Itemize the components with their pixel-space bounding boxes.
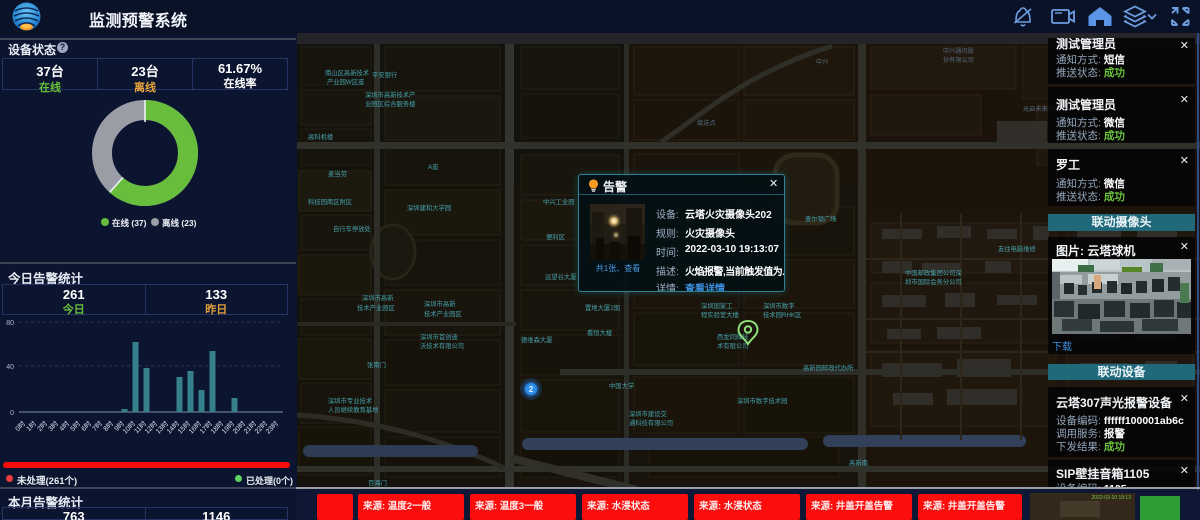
svg-text:深圳市数字技术园: 深圳市数字技术园 xyxy=(737,396,787,405)
svg-text:高科机楼: 高科机楼 xyxy=(308,132,334,141)
svg-text:中国大学: 中国大学 xyxy=(609,381,634,390)
svg-text:张南门: 张南门 xyxy=(367,360,386,369)
svg-text:深圳市首创迪: 深圳市首创迪 xyxy=(420,332,458,341)
svg-text:3时: 3时 xyxy=(46,419,60,433)
svg-text:1时: 1时 xyxy=(24,419,38,433)
svg-text:南山区高新技术: 南山区高新技术 xyxy=(325,68,370,77)
svg-text:查尔顿广场: 查尔顿广场 xyxy=(805,214,836,223)
svg-text:高新园邮政代办所: 高新园邮政代办所 xyxy=(803,363,854,372)
svg-text:高新南: 高新南 xyxy=(849,458,868,467)
svg-text:深圳市高新: 深圳市高新 xyxy=(424,299,456,308)
svg-text:深圳市专业技术: 深圳市专业技术 xyxy=(328,396,373,405)
svg-text:0: 0 xyxy=(10,410,14,417)
svg-text:5时: 5时 xyxy=(68,419,82,433)
svg-text:中兴通讯股: 中兴通讯股 xyxy=(943,47,974,55)
svg-text:深圳市高新: 深圳市高新 xyxy=(362,293,394,302)
svg-text:技术产业园区: 技术产业园区 xyxy=(424,309,462,318)
svg-text:沃技术有限公司: 沃技术有限公司 xyxy=(420,341,464,350)
svg-text:圳市国际会务分公司: 圳市国际会务分公司 xyxy=(905,277,962,286)
svg-text:术有限公司: 术有限公司 xyxy=(717,341,748,350)
svg-text:80: 80 xyxy=(6,320,14,327)
svg-text:麦当劳: 麦当劳 xyxy=(328,169,347,178)
svg-text:通科技有限公司: 通科技有限公司 xyxy=(629,418,673,427)
svg-text:远望谷大厦: 远望谷大厦 xyxy=(545,272,577,281)
svg-text:深圳建和大学园: 深圳建和大学园 xyxy=(407,203,451,212)
svg-text:置地大厦2期: 置地大厦2期 xyxy=(585,303,620,312)
svg-text:业园区综合服务楼: 业园区综合服务楼 xyxy=(365,99,416,108)
svg-text:中兴: 中兴 xyxy=(816,58,828,66)
svg-text:技术园RHK区: 技术园RHK区 xyxy=(763,310,801,319)
svg-text:8时: 8时 xyxy=(101,419,115,433)
svg-text:2: 2 xyxy=(529,385,534,394)
svg-text:德维森大厦: 德维森大厦 xyxy=(521,335,553,344)
svg-text:看恒大楼: 看恒大楼 xyxy=(587,328,613,337)
svg-text:深圳国家工: 深圳国家工 xyxy=(701,301,732,310)
svg-text:7时: 7时 xyxy=(90,419,104,433)
svg-text:深圳市数字: 深圳市数字 xyxy=(763,301,794,310)
svg-text:自行车停放处: 自行车停放处 xyxy=(333,224,371,233)
svg-text:平安银行: 平安银行 xyxy=(372,70,398,79)
svg-text:中国邮政集团公司深: 中国邮政集团公司深 xyxy=(905,268,962,277)
svg-text:人员继续教育基地: 人员继续教育基地 xyxy=(328,405,379,414)
svg-text:6时: 6时 xyxy=(79,419,93,433)
svg-text:0时: 0时 xyxy=(13,419,27,433)
svg-text:中兴工业园: 中兴工业园 xyxy=(543,197,574,206)
svg-text:技术产业园区: 技术产业园区 xyxy=(357,303,395,312)
svg-text:科技园南区附区: 科技园南区附区 xyxy=(308,197,352,206)
svg-text:便利区: 便利区 xyxy=(546,232,565,241)
svg-text:程实验室大楼: 程实验室大楼 xyxy=(701,310,739,319)
svg-text:40: 40 xyxy=(6,364,14,371)
svg-text:A座: A座 xyxy=(428,162,439,171)
svg-text:深圳市高新技术产: 深圳市高新技术产 xyxy=(365,90,415,99)
svg-text:产业园W区座: 产业园W区座 xyxy=(327,77,364,86)
svg-text:友住电脑维修: 友住电脑维修 xyxy=(998,244,1036,253)
svg-text:接送点: 接送点 xyxy=(697,119,716,127)
svg-text:2时: 2时 xyxy=(35,419,49,433)
svg-text:深圳市建设交: 深圳市建设交 xyxy=(629,409,667,418)
svg-text:份有限公司: 份有限公司 xyxy=(943,56,974,64)
svg-text:4时: 4时 xyxy=(57,419,71,433)
